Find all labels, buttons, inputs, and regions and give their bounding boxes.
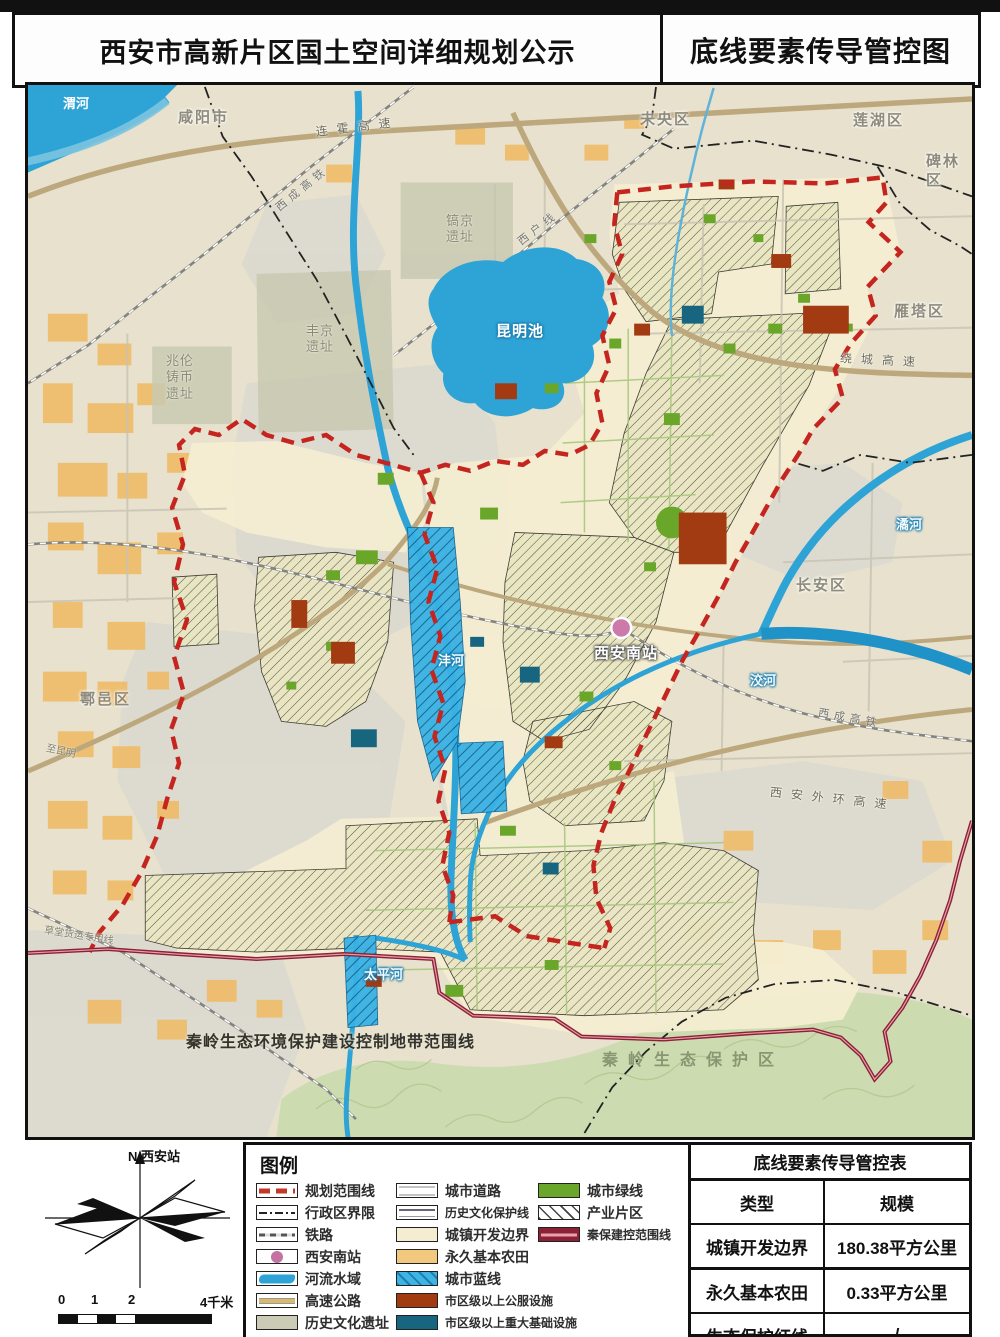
legend-item-label: 秦保建控范围线 (587, 1226, 671, 1243)
legend-item-label: 历史文化遗址 (305, 1313, 389, 1333)
legend-item-label: 城镇开发边界 (445, 1225, 529, 1245)
page-title: 西安市高新片区国土空间详细规划公示 (15, 15, 663, 85)
table-title: 底线要素传导管控表 (691, 1145, 969, 1178)
legend-item: 城市蓝线 (396, 1271, 577, 1286)
legend-item-label: 永久基本农田 (445, 1247, 529, 1267)
map-label-5: 碑林区 (926, 153, 972, 191)
top-border-bar (0, 0, 1000, 12)
green-swatch-icon (538, 1183, 580, 1198)
map-label-14: 长安区 (796, 577, 847, 596)
legend-item-label: 高速公路 (305, 1291, 361, 1311)
legend-title: 图例 (260, 1151, 298, 1178)
table-cell-type: 生态保护红线 (691, 1314, 825, 1337)
map-sheet-title: 底线要素传导管控图 (663, 15, 978, 85)
legend-item: 市区级以上公服设施 (396, 1293, 577, 1308)
dev-swatch-icon (396, 1227, 438, 1242)
map-label-7: 西户线 (516, 209, 562, 249)
station-swatch-icon (256, 1249, 298, 1264)
map-label-18: 洨河 (750, 673, 776, 689)
legend-item: 铁路 (256, 1227, 389, 1242)
page: 西安市高新片区国土空间详细规划公示 底线要素传导管控图 (0, 0, 1000, 1337)
legend-item: 市区级以上重大基础设施 (396, 1315, 577, 1330)
map-canvas: 渭河咸阳市连霍高速未央区莲湖区碑林区西成高铁西户线镐京 遗址丰京 遗址兆伦 铸币… (25, 82, 975, 1140)
scale-segment (135, 1315, 211, 1323)
planning-line-swatch-icon (256, 1183, 298, 1198)
qinbao-swatch-icon (538, 1227, 580, 1242)
scale-bar: 0124千米 (58, 1292, 238, 1334)
map-label-16: 西安南站 (594, 645, 658, 664)
scale-segment (97, 1315, 116, 1323)
compass-north-label: N 西安站 (128, 1146, 180, 1165)
map-label-24: 太平河 (364, 967, 403, 983)
table-cell-type: 永久基本农田 (691, 1270, 825, 1312)
scale-tick-label: 1 (91, 1292, 98, 1307)
map-label-3: 未央区 (640, 111, 691, 130)
table-col-header-type: 类型 (691, 1181, 825, 1223)
header: 西安市高新片区国土空间详细规划公示 底线要素传导管控图 (12, 12, 981, 88)
road-swatch-icon (396, 1183, 438, 1198)
legend-item: 西安南站 (256, 1249, 389, 1264)
map-label-8: 镐京 遗址 (446, 213, 474, 246)
control-table: 底线要素传导管控表 类型 规模 城镇开发边界180.38平方公里永久基本农田0.… (688, 1142, 972, 1337)
table-cell-type: 城镇开发边界 (691, 1225, 825, 1267)
industry-swatch-icon (538, 1205, 580, 1220)
scale-tick-label: 2 (128, 1292, 135, 1307)
map-label-17: 沣河 (438, 653, 464, 669)
legend-item: 城市绿线 (538, 1183, 671, 1198)
map-label-19: 西成高铁 (817, 707, 882, 732)
map-label-2: 连霍高速 (315, 115, 400, 140)
map-label-6: 西成高铁 (274, 164, 332, 215)
legend-item-label: 城市道路 (445, 1181, 501, 1201)
legend-item: 历史文化遗址 (256, 1315, 389, 1330)
legend-item-label: 市区级以上重大基础设施 (445, 1314, 577, 1331)
historic-swatch-icon (256, 1315, 298, 1330)
legend-item-label: 城市绿线 (587, 1181, 643, 1201)
heritage-line-swatch-icon (396, 1205, 438, 1220)
scale-segment (59, 1315, 78, 1323)
table-cell-scale: 0.33平方公里 (825, 1270, 969, 1312)
admin-line-swatch-icon (256, 1205, 298, 1220)
legend-item-label: 历史文化保护线 (445, 1204, 529, 1221)
scale-tick-label: 4千米 (200, 1292, 233, 1311)
farm-swatch-icon (396, 1249, 438, 1264)
table-row: 城镇开发边界180.38平方公里 (691, 1225, 969, 1270)
table-col-header-scale: 规模 (825, 1181, 969, 1223)
map-label-25: 秦岭生态环境保护建设控制地带范围线 (186, 1033, 475, 1053)
scale-segment (116, 1315, 135, 1323)
legend-item-label: 城市蓝线 (445, 1269, 501, 1289)
legend-item-label: 规划范围线 (305, 1181, 375, 1201)
legend-item: 河流水域 (256, 1271, 389, 1286)
table-row: 生态保护红线/ (691, 1314, 969, 1337)
map-label-15: 潏河 (896, 517, 922, 533)
water-swatch-icon (256, 1271, 298, 1286)
legend-item: 规划范围线 (256, 1183, 389, 1198)
map-label-26: 秦岭生态保护区 (602, 1051, 784, 1071)
legend-item-label: 河流水域 (305, 1269, 361, 1289)
scale-bar-segments (58, 1314, 212, 1324)
public-swatch-icon (396, 1293, 438, 1308)
blue-swatch-icon (396, 1271, 438, 1286)
legend-item-label: 行政区界限 (305, 1203, 375, 1223)
infra-swatch-icon (396, 1315, 438, 1330)
map-label-23: 草堂货运专用线 (43, 925, 114, 948)
map-label-22: 至昆明 (45, 743, 77, 761)
map-label-12: 绕城高速 (840, 351, 925, 370)
legend-item-label: 市区级以上公服设施 (445, 1292, 553, 1309)
legend-item-label: 产业片区 (587, 1203, 643, 1223)
legend-item-label: 铁路 (305, 1225, 333, 1245)
table-cell-scale: 180.38平方公里 (825, 1225, 969, 1267)
map-label-4: 莲湖区 (853, 112, 904, 131)
legend-item: 秦保建控范围线 (538, 1227, 671, 1242)
legend-item: 产业片区 (538, 1205, 671, 1220)
map-label-13: 雁塔区 (894, 303, 945, 322)
map-label-11: 昆明池 (496, 323, 544, 342)
map-label-21: 鄠邑区 (80, 691, 131, 710)
map-label-10: 兆伦 铸币 遗址 (166, 353, 194, 402)
legend-item: 永久基本农田 (396, 1249, 577, 1264)
legend: 图例 规划范围线行政区界限铁路西安南站河流水域高速公路历史文化遗址 城市道路历史… (243, 1142, 691, 1337)
scale-tick-label: 0 (58, 1292, 65, 1307)
legend-item: 行政区界限 (256, 1205, 389, 1220)
map-label-1: 咸阳市 (178, 109, 229, 128)
highway-swatch-icon (256, 1293, 298, 1308)
compass-rose (35, 1146, 235, 1296)
railway-swatch-icon (256, 1227, 298, 1242)
map-label-20: 西安外环高速 (769, 785, 896, 813)
scale-segment (78, 1315, 97, 1323)
map-labels-layer: 渭河咸阳市连霍高速未央区莲湖区碑林区西成高铁西户线镐京 遗址丰京 遗址兆伦 铸币… (28, 85, 972, 1137)
legend-item: 高速公路 (256, 1293, 389, 1308)
table-cell-scale: / (825, 1314, 969, 1337)
map-label-0: 渭河 (58, 95, 94, 113)
legend-item-label: 西安南站 (305, 1247, 361, 1267)
map-label-9: 丰京 遗址 (306, 323, 334, 356)
table-row: 永久基本农田0.33平方公里 (691, 1270, 969, 1314)
